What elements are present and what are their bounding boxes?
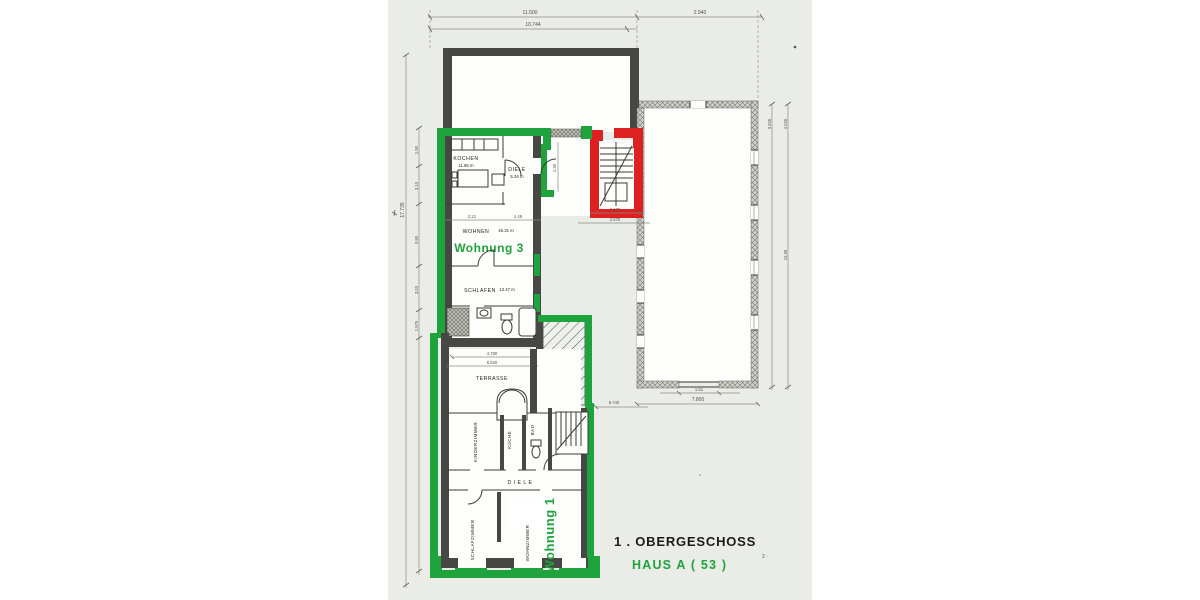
building-top-left bbox=[443, 48, 639, 132]
dim-mid: 5.740 bbox=[609, 400, 620, 405]
dim-terrace-a: 4.760 bbox=[487, 351, 498, 356]
dim-right-2: 4.045 bbox=[783, 118, 788, 129]
room-label-wohnzimmer: WOHNZIMMER bbox=[525, 524, 530, 561]
building-top-left-interior bbox=[452, 56, 630, 132]
building-right: 1.51 7.800 bbox=[635, 101, 760, 406]
dim-left-4: 3.03 bbox=[414, 285, 419, 294]
floor-plan-drawing: 11.500 2.940 10.744 17.735 1.50 3.13 3.9… bbox=[0, 0, 1200, 600]
apartment-label-wohnung3: Wohnung 3 bbox=[454, 241, 524, 255]
dim-right-1: 3.945 bbox=[767, 118, 772, 129]
dim-right-3: 15.59 bbox=[783, 249, 788, 260]
dim-stair-2: 2.570 bbox=[610, 217, 621, 222]
floor-plan-scan: 11.500 2.940 10.744 17.735 1.50 3.13 3.9… bbox=[0, 0, 1200, 600]
room-area-schlafen: 13.47 m bbox=[499, 287, 515, 292]
room-label-kochen: KOCHEN bbox=[453, 156, 478, 162]
dim-terrace-b: 5.520 bbox=[487, 360, 498, 365]
room-label-wohnen: WOHNEN bbox=[463, 229, 490, 235]
dim-bottom-total: 7.800 bbox=[692, 397, 705, 403]
building-right-interior bbox=[644, 108, 751, 381]
dim-top-total: 11.500 bbox=[523, 10, 538, 16]
dim-stair-1: 2.170 bbox=[610, 207, 621, 212]
dim-corridor: 1.36 bbox=[552, 163, 557, 172]
stairs-wohnung1 bbox=[556, 412, 588, 454]
room-label-kinderzimmer: KINDERZIMMER bbox=[473, 422, 478, 463]
page-mark: 2 · bbox=[762, 554, 768, 560]
room-label-terrasse: TERRASSE bbox=[476, 376, 508, 382]
room-label-schlafen: SCHLAFEN bbox=[464, 288, 496, 294]
room-label-bad: BAD bbox=[530, 424, 535, 435]
dim-left-5: 1.975 bbox=[414, 320, 419, 331]
dim-top-inner: 10.744 bbox=[525, 22, 541, 28]
title-floor: 1 . OBERGESCHOSS bbox=[614, 534, 756, 549]
dim-door-width: 1.51 bbox=[695, 387, 704, 392]
dim-left-1: 1.50 bbox=[414, 145, 419, 154]
room-area-diele3: 5.34 m bbox=[510, 174, 524, 179]
window-band bbox=[551, 129, 581, 137]
dim-left-total: 17.735 bbox=[400, 202, 406, 218]
dim-w3-2: 1.48 bbox=[514, 214, 523, 219]
room-area-kochen: 11.86 m bbox=[458, 163, 474, 168]
room-label-diele3: DIELE bbox=[508, 167, 526, 173]
dim-top-right: 2.940 bbox=[694, 10, 707, 16]
dim-w3-1: 3.21 bbox=[468, 214, 477, 219]
room-label-kueche: KÜCHE bbox=[506, 431, 512, 449]
bad-fixtures bbox=[531, 440, 541, 458]
room-label-schlafzimmer: SCHLAFZIMMER bbox=[470, 519, 475, 560]
dim-left-2: 3.13 bbox=[414, 181, 419, 190]
title-house: HAUS A ( 53 ) bbox=[632, 558, 727, 572]
dim-left-3: 3.90 bbox=[414, 235, 419, 244]
room-label-diele1: D I E L E bbox=[507, 480, 532, 486]
room-area-wohnen: 46.31 m bbox=[498, 228, 514, 233]
apartment-label-wohnung1: Wohnung 1 bbox=[542, 497, 557, 572]
